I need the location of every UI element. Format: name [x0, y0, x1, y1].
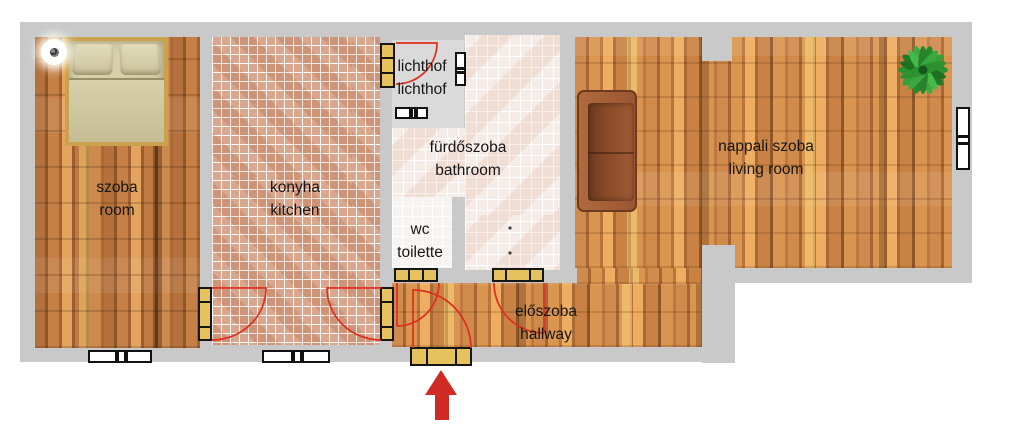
label-konyha-hu: konyha: [270, 176, 320, 199]
door-panel: [396, 270, 408, 280]
pillow: [119, 44, 161, 75]
label-eloszoba: előszoba hallway: [515, 300, 577, 346]
window-lichthof-small: [395, 107, 428, 119]
ceiling-lamp: [41, 39, 67, 65]
door-panel: [428, 349, 455, 364]
door-panel: [507, 270, 529, 280]
door-wc: [394, 268, 438, 282]
label-lichthof-en: lichthof: [397, 78, 446, 101]
window-konyha: [262, 350, 330, 363]
bed: [65, 37, 168, 146]
door-panel: [382, 74, 393, 86]
label-konyha: konyha kitchen: [270, 176, 320, 222]
label-nappali-hu: nappali szoba: [718, 135, 814, 158]
label-furdoszoba-hu: fürdőszoba: [430, 136, 507, 159]
door-panel: [382, 45, 393, 57]
label-szoba: szoba room: [96, 176, 137, 222]
label-wc-hu: wc: [397, 218, 443, 241]
label-lichthof: lichthof lichthof: [397, 55, 446, 101]
door-panel: [424, 270, 436, 280]
label-szoba-hu: szoba: [96, 176, 137, 199]
door-bathroom: [492, 268, 544, 282]
door-panel: [200, 303, 210, 326]
door-konyha-hallway: [380, 287, 394, 341]
door-panel: [382, 303, 392, 326]
wall-column: [702, 245, 735, 363]
window-lichthof: [455, 52, 466, 86]
door-panel: [531, 270, 542, 280]
label-konyha-en: kitchen: [270, 199, 320, 222]
label-eloszoba-hu: előszoba: [515, 300, 577, 323]
wall-notch: [702, 37, 732, 61]
door-panel: [457, 349, 471, 364]
label-nappali-en: living room: [718, 158, 814, 181]
door-panel: [382, 328, 392, 340]
label-lichthof-hu: lichthof: [397, 55, 446, 78]
label-nappali: nappali szoba living room: [718, 135, 814, 181]
door-panel: [412, 349, 426, 364]
floor-plan: szoba room konyha kitchen lichthof licht…: [0, 0, 1024, 426]
sofa: [577, 90, 637, 212]
label-wc-en: toilette: [397, 241, 443, 264]
door-panel: [410, 270, 422, 280]
door-panel: [200, 328, 210, 340]
sofa-cushions: [588, 103, 634, 201]
wall-top-right: [702, 22, 972, 37]
pillow: [72, 44, 114, 75]
door-lichthof: [380, 43, 395, 88]
door-szoba: [198, 287, 212, 341]
door-panel: [200, 289, 210, 301]
label-furdoszoba-en: bathroom: [430, 159, 507, 182]
window-szoba: [88, 350, 152, 363]
label-szoba-en: room: [96, 199, 137, 222]
hallway-living-opening: [577, 268, 702, 284]
wall-bottom-right: [735, 268, 952, 283]
entrance-arrow: [425, 370, 457, 420]
door-panel: [382, 59, 393, 71]
door-entrance: [410, 347, 472, 366]
label-wc: wc toilette: [397, 218, 443, 264]
door-panel: [494, 270, 505, 280]
blanket: [69, 78, 164, 142]
label-furdoszoba: fürdőszoba bathroom: [430, 136, 507, 182]
label-eloszoba-en: hallway: [515, 323, 577, 346]
window-living-room: [956, 107, 970, 170]
door-panel: [382, 289, 392, 301]
